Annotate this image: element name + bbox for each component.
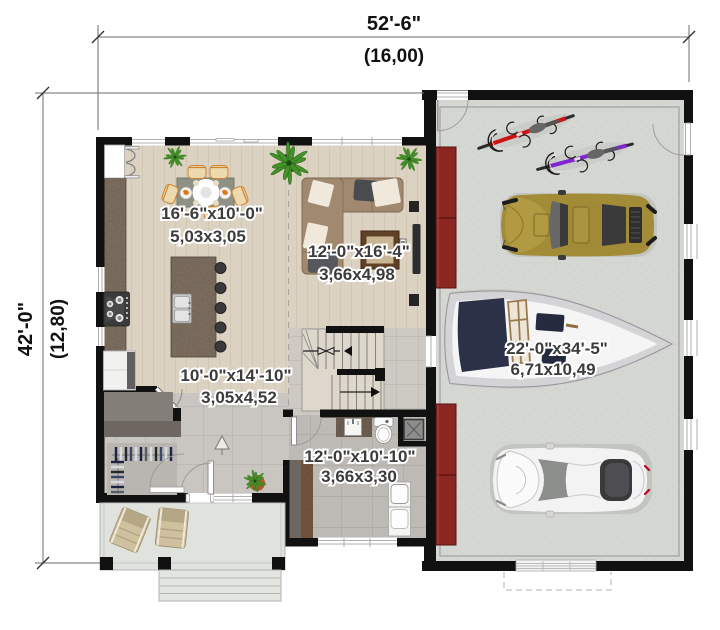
svg-text:3,66x4,98: 3,66x4,98 xyxy=(319,265,395,284)
svg-text:3,66x3,30: 3,66x3,30 xyxy=(321,467,397,486)
svg-text:12'-0"x16'-4": 12'-0"x16'-4" xyxy=(308,242,410,261)
svg-text:52'-6": 52'-6" xyxy=(367,13,421,35)
svg-text:42'-0": 42'-0" xyxy=(15,302,37,356)
svg-text:22'-0"x34'-5": 22'-0"x34'-5" xyxy=(506,339,608,358)
svg-text:12'-0"x10'-10": 12'-0"x10'-10" xyxy=(304,447,415,466)
svg-text:16'-6"x10'-0": 16'-6"x10'-0" xyxy=(161,204,263,223)
svg-text:5,03x3,05: 5,03x3,05 xyxy=(170,227,246,246)
svg-text:3,05x4,52: 3,05x4,52 xyxy=(201,388,277,407)
svg-text:(12,80): (12,80) xyxy=(48,299,69,359)
svg-text:6,71x10,49: 6,71x10,49 xyxy=(510,360,595,379)
svg-text:10'-0"x14'-10": 10'-0"x14'-10" xyxy=(180,366,291,385)
svg-text:(16,00): (16,00) xyxy=(364,46,424,67)
